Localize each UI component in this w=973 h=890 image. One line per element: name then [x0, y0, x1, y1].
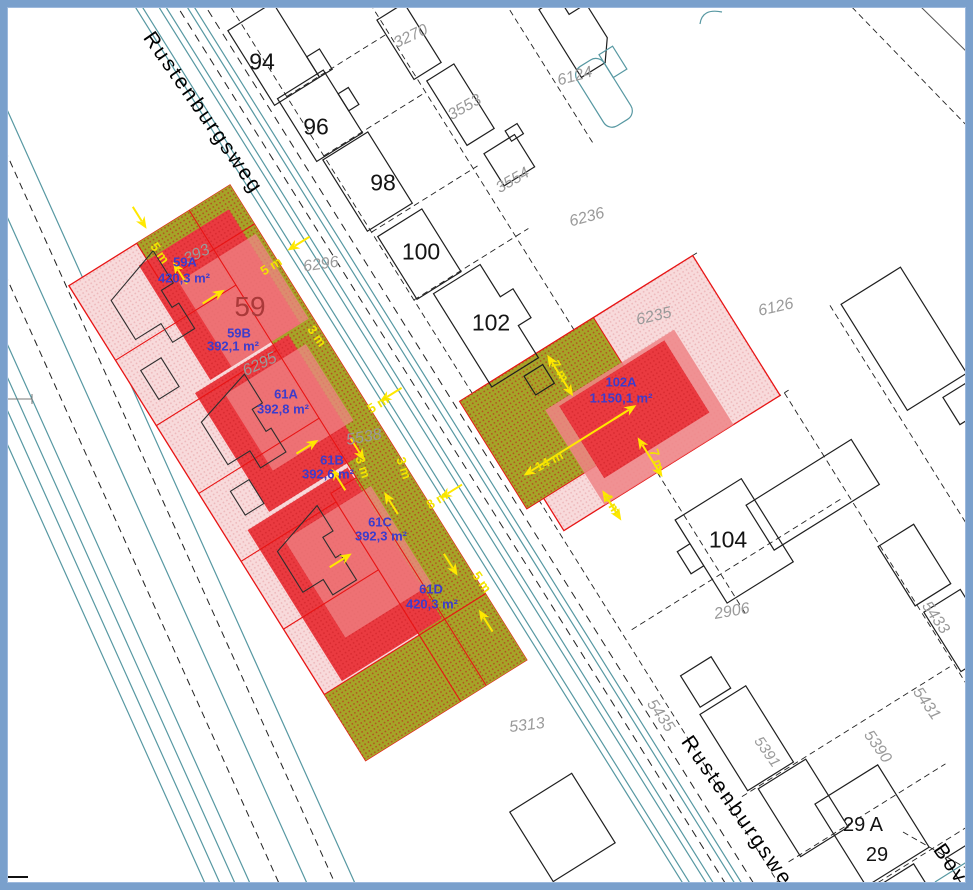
parcel-number-5433: 5433: [918, 599, 952, 637]
parcel-number-5431: 5431: [909, 685, 943, 723]
parcel-number-5435: 5435: [643, 697, 677, 735]
dimension-7m-2: 7 m: [647, 447, 666, 472]
plot-area-102a: 1.150,1 m²: [590, 392, 653, 405]
plot-label-102a: 102A: [605, 376, 636, 389]
parcel-number-5391: 5391: [751, 734, 782, 770]
dimension-3m-1: 3 m: [305, 323, 329, 349]
map-page: RustenburgswegRustenburgswegBovenweg9496…: [0, 0, 973, 890]
plot-label-61d: 61D: [419, 583, 443, 596]
parcel-number-6295: 6295: [240, 350, 279, 380]
house-number-94: 94: [249, 51, 275, 74]
house-number-102: 102: [472, 312, 510, 335]
parcel-number-6126: 6126: [757, 296, 795, 320]
parcel-number-5313: 5313: [508, 716, 545, 736]
plot-label-59a: 59A: [173, 256, 197, 269]
house-number-clipped-top: 16b: [569, 0, 601, 7]
dimension-8m: 8 m: [424, 489, 450, 512]
parcel-number-5538: 5538: [345, 427, 383, 449]
plot-label-61b: 61B: [320, 454, 344, 467]
plot-area-61b: 392,6 m²: [302, 468, 354, 481]
plot-area-59a: 420,3 m²: [158, 272, 210, 285]
street-name-rustenburgsweg-bottom: Rustenburgsweg: [677, 732, 805, 890]
plot-area-61c: 392,3 m²: [355, 530, 407, 543]
dimension-5m-4: 5 m: [470, 569, 494, 595]
plot-area-61d: 420,3 m²: [406, 598, 458, 611]
dimension-5m-1: 5 m: [148, 240, 172, 266]
parcel-number-6235: 6235: [635, 305, 673, 329]
parcel-number-3554: 3554: [494, 165, 533, 197]
house-number-29a: 29 A: [843, 815, 883, 835]
house-number-100: 100: [402, 241, 440, 264]
parcel-number-2906: 2906: [713, 601, 751, 623]
dimension-5m-2: 5 m: [258, 255, 284, 278]
dimension-3m-2: 3 m: [353, 454, 372, 479]
plot-area-61a: 392,8 m²: [257, 403, 309, 416]
street-name-rustenburgsweg-top: Rustenburgsweg: [139, 28, 267, 198]
house-number-29: 29: [866, 845, 888, 865]
dimension-4m: 4 m: [601, 491, 624, 517]
house-number-96: 96: [303, 116, 329, 139]
plot-area-59b: 392,1 m²: [207, 340, 259, 353]
house-number-98: 98: [370, 172, 396, 195]
parcel-number-6296: 6296: [302, 255, 339, 276]
parcel-number-6236: 6236: [568, 206, 607, 231]
dimension-14m: 14 m: [533, 448, 565, 473]
dimension-3m-3: 3 m: [394, 455, 413, 480]
parcel-number-6124: 6124: [556, 65, 595, 90]
dimension-5m-3: 5 m: [365, 393, 391, 416]
plot-number-59: 59: [234, 293, 265, 321]
map-labels-layer: RustenburgswegRustenburgswegBovenweg9496…: [0, 0, 973, 890]
plot-label-61c: 61C: [368, 516, 392, 529]
street-name-bovenweg-partial: Bovenweg: [929, 840, 973, 890]
dimension-7m-1: 7 m: [549, 358, 572, 384]
parcel-number-3553: 3553: [446, 92, 485, 124]
parcel-number-5390: 5390: [860, 728, 894, 766]
parcel-number-3270: 3270: [391, 22, 430, 52]
plot-label-61a: 61A: [274, 388, 298, 401]
house-number-104: 104: [709, 529, 747, 552]
